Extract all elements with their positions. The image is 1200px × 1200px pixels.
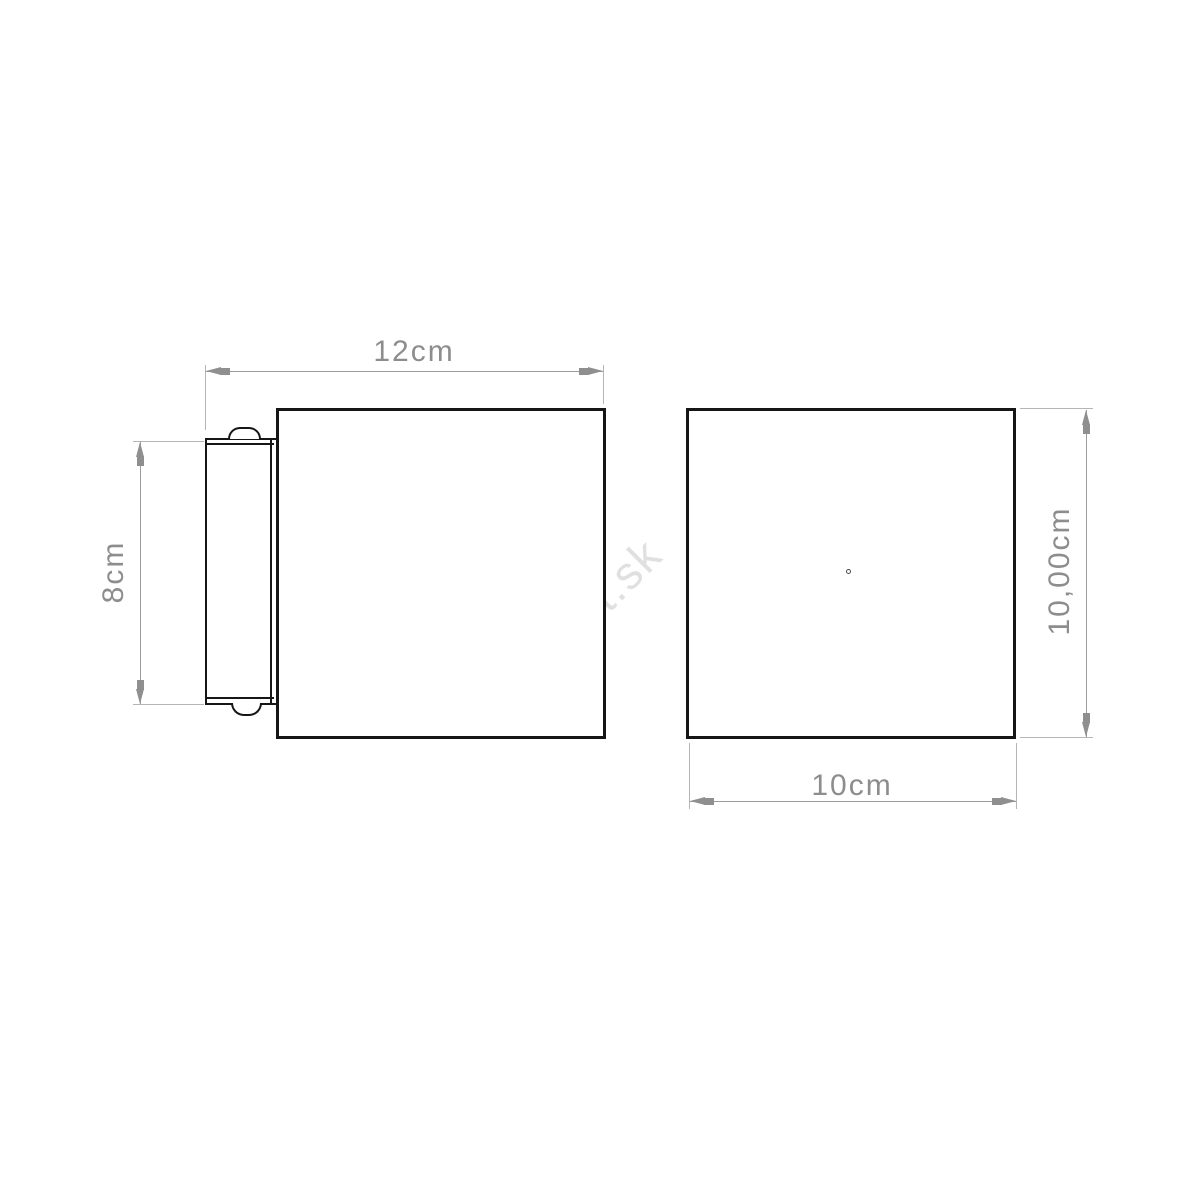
dimension-arrow-down-icon [1082,711,1091,737]
dimension-arrow-right-icon [577,367,603,376]
bracket-screw-top [228,427,261,439]
extension-line [1020,408,1093,409]
dimension-line-height-front [1086,410,1087,737]
dimension-arrow-left-icon [690,797,716,806]
side-view-body [276,408,606,739]
dimension-arrow-left-icon [206,367,232,376]
dimension-drawing: rent.sk 12cm 8cm 10,00cm 10cm [0,0,1200,1200]
bracket-inner-line-bottom [207,697,274,699]
extension-line [603,365,604,404]
bracket-screw-bottom [231,703,262,716]
dimension-arrow-up-icon [1082,410,1091,436]
bracket-inner-line-top [207,443,274,445]
center-hole [846,569,851,574]
bracket-inner-line-right [270,440,272,703]
dimension-arrow-down-icon [136,678,145,704]
dimension-arrow-right-icon [990,797,1016,806]
dimension-label-side-width: 12cm [373,335,454,369]
dimension-label-front-width: 10cm [811,769,892,803]
dimension-label-front-height: 10,00cm [1043,506,1077,635]
dimension-label-side-height: 8cm [97,541,131,604]
extension-line [133,704,204,705]
dimension-arrow-up-icon [136,442,145,468]
extension-line [1020,737,1093,738]
front-view-body [686,408,1016,739]
extension-line [1016,743,1017,809]
dimension-line-width-side [206,371,603,372]
wall-bracket [205,438,278,705]
dimension-line-height-side [140,442,141,704]
